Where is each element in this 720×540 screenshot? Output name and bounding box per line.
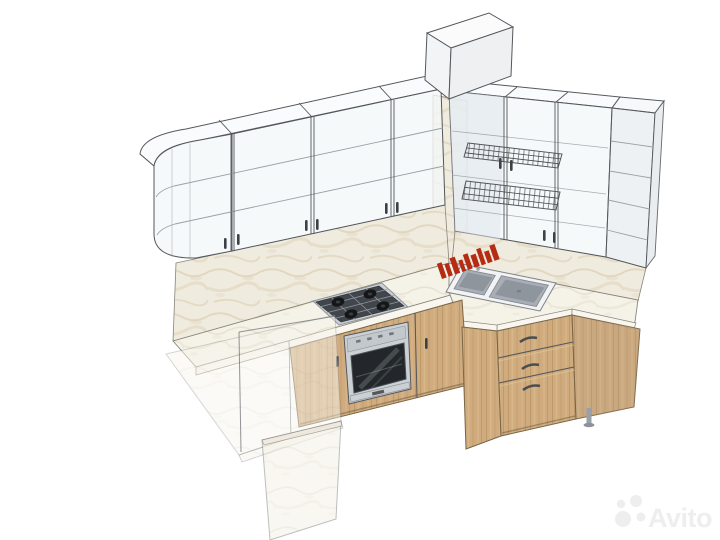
- side-panel-shade: [572, 315, 640, 419]
- drawer-unit-left-stile: [462, 327, 501, 449]
- open-shelf-end-unit: [606, 101, 664, 268]
- avito-logo-icon: [617, 500, 625, 508]
- sink-drain: [517, 290, 522, 293]
- burner-cap: [368, 293, 372, 296]
- door-handle: [385, 203, 388, 214]
- kitchen-render-page: Avito: [0, 0, 720, 540]
- door-handle: [553, 232, 556, 243]
- burner-cap: [349, 313, 353, 316]
- door-handle: [499, 158, 502, 169]
- built-in-oven: [344, 322, 411, 404]
- door-handle: [396, 202, 399, 213]
- avito-logo-icon: [615, 511, 631, 527]
- avito-logo-icon: [630, 495, 642, 507]
- burner-cap: [381, 305, 385, 308]
- door-handle: [316, 219, 319, 230]
- faucet-hole: [476, 267, 480, 271]
- adjustable-foot: [587, 408, 592, 424]
- corner-door-shade: [449, 91, 505, 240]
- door-handle: [224, 238, 227, 249]
- door-handle: [425, 338, 428, 349]
- door-handle: [543, 230, 546, 241]
- avito-logo-icon: [637, 513, 646, 522]
- curved-corner-cabinet: [154, 134, 232, 258]
- door-handle: [305, 220, 308, 231]
- door-handle: [510, 160, 513, 171]
- kitchen-3d-render: Avito: [0, 0, 720, 540]
- burner-cap: [336, 301, 340, 304]
- door-handle: [237, 234, 240, 245]
- watermark-text: Avito: [648, 503, 712, 533]
- adjustable-foot-base: [584, 423, 595, 427]
